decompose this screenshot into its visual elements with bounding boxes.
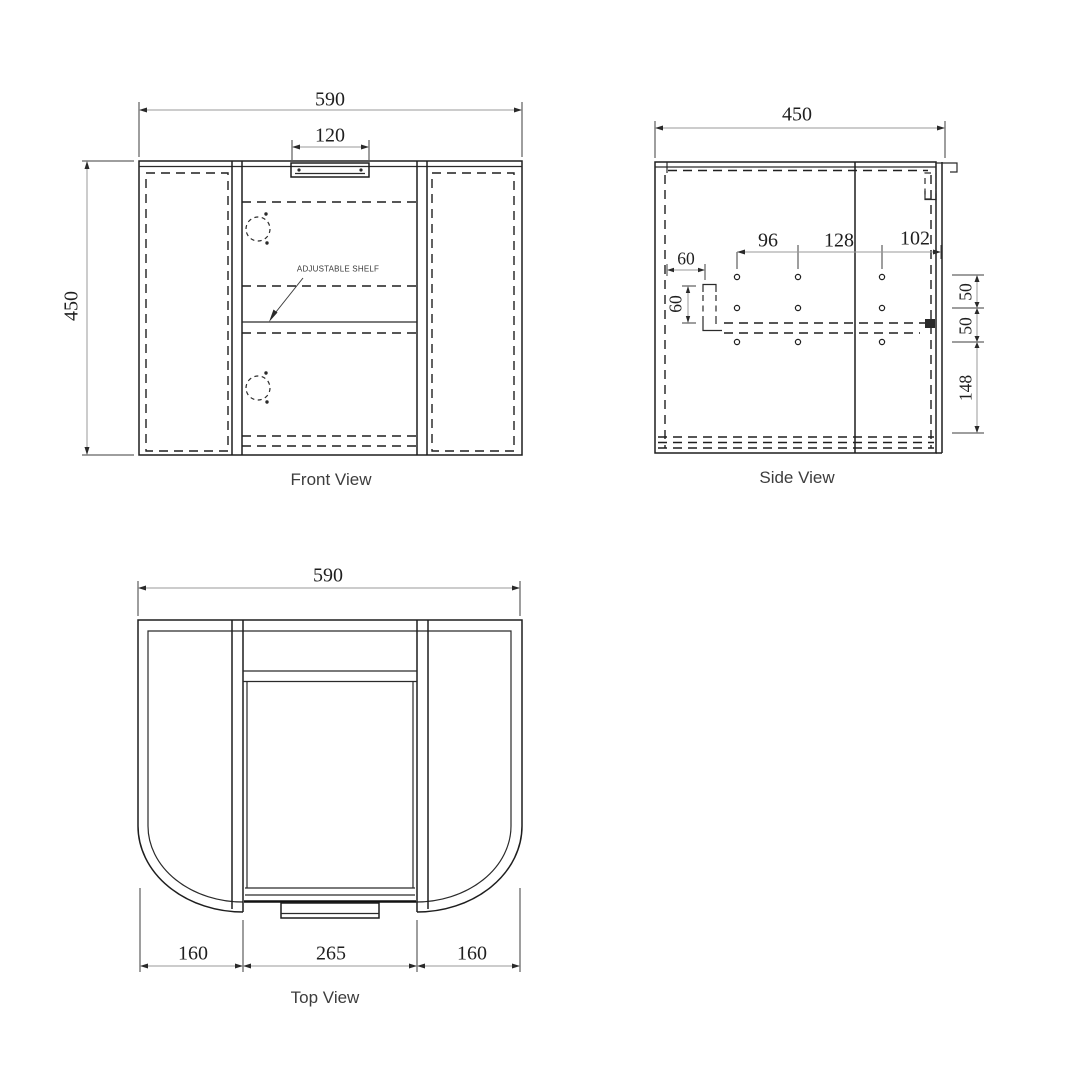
side-view-linework (655, 121, 984, 453)
top-overall-width-dim: 590 (313, 565, 343, 588)
side-row-gap2-dim: 50 (956, 317, 977, 335)
side-overall-depth-dim: 450 (782, 104, 812, 127)
top-right-wing-dim: 160 (457, 943, 487, 966)
side-view-title: Side View (759, 468, 834, 488)
side-bracket-offset-h-dim: 60 (677, 249, 695, 270)
technical-drawing-canvas: 590 120 450 ADJUSTABLE SHELF Front View … (0, 0, 1080, 1080)
side-bottom-offset-dim: 148 (956, 375, 977, 401)
front-overall-height-dim: 450 (61, 291, 84, 321)
side-hole-pitch1-dim: 96 (758, 230, 778, 253)
top-door-width-dim: 265 (316, 943, 346, 966)
side-bracket-offset-v-dim: 60 (666, 295, 687, 313)
front-view-title: Front View (291, 470, 372, 490)
top-view-linework (138, 581, 522, 972)
adjustable-shelf-annotation: ADJUSTABLE SHELF (297, 265, 379, 274)
front-overall-width-dim: 590 (315, 89, 345, 112)
front-handle-width-dim: 120 (315, 125, 345, 148)
side-row-gap1-dim: 50 (956, 283, 977, 301)
front-view-linework (82, 102, 522, 455)
drawing-linework (0, 0, 1080, 1080)
side-hole-pitch2-dim: 128 (824, 230, 854, 253)
top-view-title: Top View (291, 988, 360, 1008)
side-hole-to-front-dim: 102 (900, 228, 930, 251)
top-left-wing-dim: 160 (178, 943, 208, 966)
